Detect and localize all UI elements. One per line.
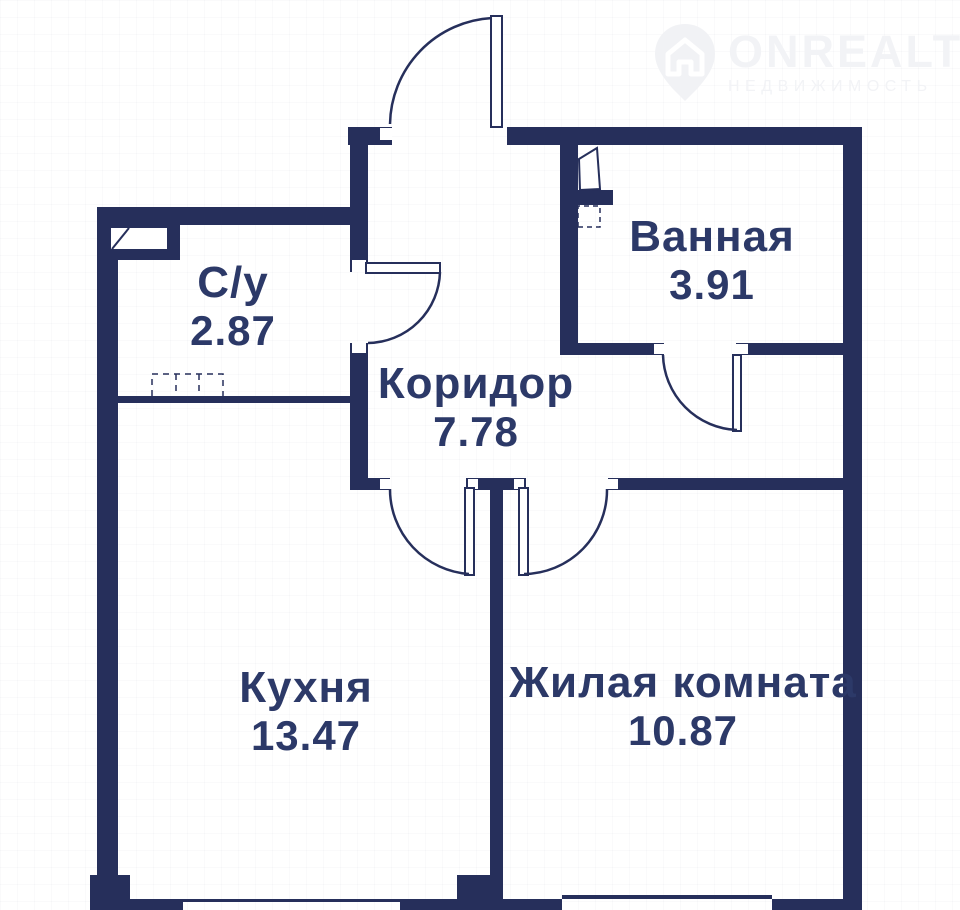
room-area: 7.78 [378,411,574,453]
room-name: Коридор [378,362,574,406]
room-name: С/у [190,261,276,305]
wall-left-base-pier [90,875,130,899]
jamb-entrance-left [380,128,392,140]
bathroom-shaft-hatch [579,148,600,190]
jamb-su-bottom [352,342,366,353]
jamb-su-top [352,260,366,272]
jamb-living-right [608,479,618,489]
room-label-su: С/у 2.87 [190,261,276,352]
wall-su-bottom-thin [97,396,350,403]
bathroom-shaft-dashed-outline [578,206,600,227]
kitchen-door-arc [390,489,469,574]
room-label-living-room: Жилая комната 10.87 [509,661,857,752]
entrance-door-arc [390,18,492,124]
kitchen-door-leaf [465,488,474,575]
wall-bottom-right [772,899,862,910]
living-door-arc [524,489,607,574]
wall-bathroom-bottom-right [736,343,843,355]
jamb-bathroom-left [654,344,664,354]
room-area: 2.87 [190,310,276,352]
window-line-living [562,895,772,899]
jamb-kitchen-left [380,479,390,489]
wall-left-outer [97,207,118,899]
wall-bathroom-bottom-left [560,343,664,355]
wall-bathroom-left [560,127,578,355]
window-line-kitchen [183,899,400,902]
wall-bottom-center [400,899,562,910]
wall-bottom-left [90,899,183,910]
wall-bathroom-shaft-stub [560,190,613,205]
floor-plan-canvas: ONREALT НЕДВИЖИМОСТЬ [0,0,960,910]
su-vent-shaft [110,227,168,250]
entrance-door-leaf [491,16,502,127]
wall-divider-base-pier [457,875,503,899]
wall-corridor-left-upper [350,127,368,272]
wall-corridor-left-lower [350,343,368,490]
room-name: Жилая комната [509,661,857,705]
floor-plan-drawing [0,0,960,910]
wall-su-top [97,207,362,225]
wall-kitchen-living-divider [490,478,503,875]
room-name: Ванная [629,215,795,259]
jamb-bathroom-right [736,344,748,354]
su-appliance-dashed-outline [152,374,223,396]
room-area: 10.87 [509,710,857,752]
living-door-leaf [519,488,528,575]
room-label-bathroom: Ванная 3.91 [629,215,795,306]
room-label-corridor: Коридор 7.78 [378,362,574,453]
bathroom-door-leaf [733,355,741,431]
room-name: Кухня [239,666,373,710]
bathroom-door-arc [663,355,737,430]
room-area: 13.47 [239,715,373,757]
su-door-leaf [366,263,440,273]
room-area: 3.91 [629,264,795,306]
wall-corridor-living-divider [608,478,843,490]
su-door-arc [368,272,440,343]
room-label-kitchen: Кухня 13.47 [239,666,373,757]
wall-right-outer [843,127,862,910]
